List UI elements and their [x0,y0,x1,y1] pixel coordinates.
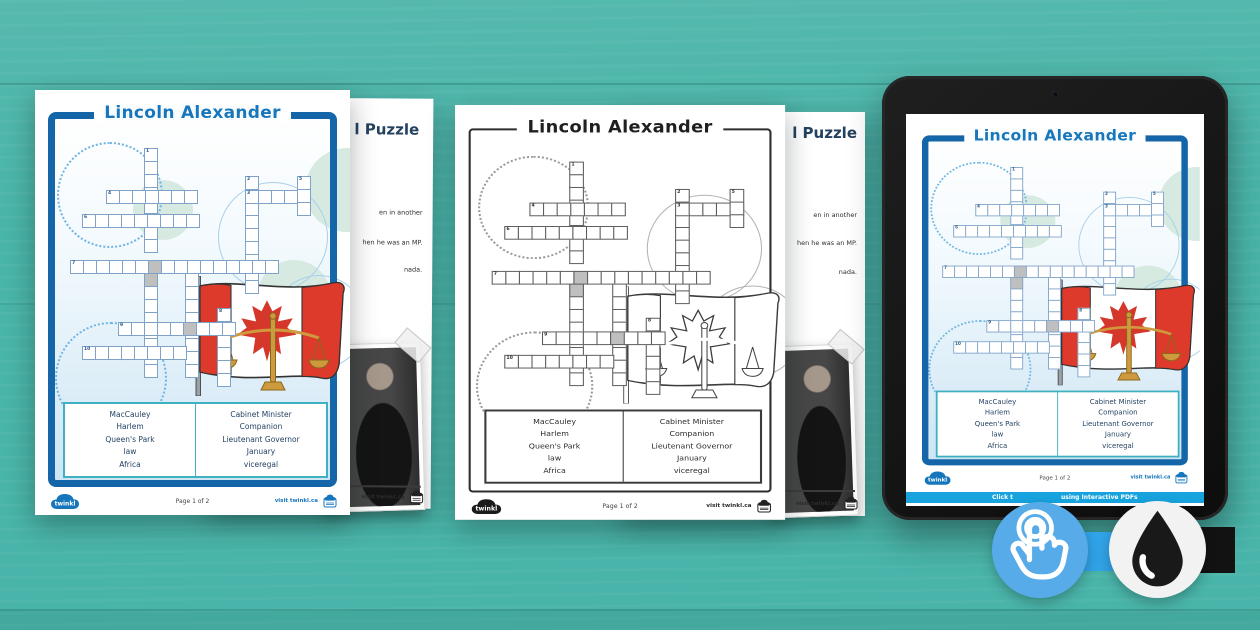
crossword-cell [518,226,533,240]
word-bank-item: MacCauley [110,409,151,422]
word-bank-item: MacCauley [979,397,1017,408]
word-bank-item: MacCauley [533,416,576,428]
quality-badge-icon [756,498,773,514]
crossword-cell [569,238,584,252]
crossword-cell [646,356,661,370]
crossword-cell [1082,320,1095,332]
crossword-clue-number: 6 [84,216,87,221]
crossword-clue-number: 10 [84,348,90,353]
word-bank-item: Companion [1098,408,1137,419]
clue-fragment: nada. [839,268,857,276]
quality-badge-icon [409,489,425,505]
crossword-cell [569,309,584,323]
crossword-cell [134,214,148,228]
crossword-cell [134,346,148,360]
word-bank-item: Cabinet Minister [1090,397,1146,408]
crossword-cell [185,273,199,287]
crossword-cell: 7 [70,260,84,274]
crossword-cell: 8 [646,318,661,332]
crossword-cell [569,284,584,298]
page-footer: twinklPage 1 of 2visit twinkl.ca [47,492,338,510]
crossword-cell [147,214,161,228]
crossword-cell [174,260,188,274]
crossword-cell: 4 [529,203,544,217]
crossword-cell [573,271,588,285]
clue-fragment: nada. [404,266,422,274]
crossword-cell [587,271,602,285]
crossword-cell [598,203,613,217]
quality-badge-icon [1174,471,1189,485]
page-two-title-fragment: l Puzzle [792,124,857,142]
visit-link-text: visit twinkl.ca [361,494,404,500]
crossword-cell [1074,266,1087,278]
crossword-cell [675,214,690,228]
crossword-clue-number: 5 [1153,193,1156,197]
page-title-row: Lincoln Alexander [910,127,1200,145]
tap-finger-icon[interactable] [992,502,1088,598]
crossword-cell [1010,357,1023,369]
word-bank-item: Africa [543,465,565,477]
crossword-cell [682,271,697,285]
word-bank-item: Queen's Park [529,441,581,453]
crossword-cell: 6 [953,225,966,237]
banner-text-fragment: Click t [992,494,1013,501]
crossword-cell [1023,204,1036,216]
tablet-screen: 14623578910Lincoln AlexanderMacCauleyHar… [906,114,1204,506]
crossword-cell [144,364,158,378]
ink-drop-icon[interactable] [1109,501,1206,598]
crossword-cell [83,260,97,274]
crossword-cell [108,346,122,360]
word-bank-column: Cabinet MinisterCompanionLieutenant Gove… [623,411,760,481]
page-title: Lincoln Alexander [964,127,1145,145]
word-bank-item: Queen's Park [975,419,1020,430]
crossword-cell [612,347,627,361]
crossword-cell [144,322,158,336]
crossword-cell [135,260,149,274]
crossword-cell [1047,204,1060,216]
visit-link-text: visit twinkl.ca [796,501,839,507]
crossword-cell [1025,341,1038,353]
crossword-clue-number: 3 [1105,205,1108,209]
crossword-cell [271,190,285,204]
crossword-cell [161,260,175,274]
crossword-cell [977,341,990,353]
crossword-cell [965,341,978,353]
crossword-cell [1077,365,1090,377]
crossword-cell: 7 [942,266,955,278]
crossword-cell [258,190,272,204]
crossword-clue-number: 9 [544,333,547,337]
crossword-cell: 3 [245,190,259,204]
crossword-clue-number: 10 [506,356,513,360]
crossword-cell [200,260,214,274]
crossword-cell [519,271,534,285]
page-two-title-fragment: l Puzzle [354,120,419,138]
crossword-cell [675,240,690,254]
crossword-cell [586,226,601,240]
crossword-cell: 7 [492,271,507,285]
word-bank-item: Africa [988,441,1008,452]
crossword-grid: 14623578910 [933,167,1191,387]
crossword-cell [543,203,558,217]
crossword-cell: 10 [953,341,966,353]
crossword-cell [572,226,587,240]
word-bank-item: Lieutenant Governor [651,441,732,453]
crossword-cell: 9 [118,322,132,336]
word-bank-item: law [548,453,561,465]
crossword-cell [209,322,223,336]
page-title: Lincoln Alexander [517,118,723,138]
crossword-clue-number: 8 [219,310,222,315]
word-bank-item: January [677,453,707,465]
crossword-cell [569,296,584,310]
crossword-cell [265,260,279,274]
crossword-clue-number: 8 [1079,309,1082,313]
crossword-cell [1127,204,1140,216]
crossword-cell [187,260,201,274]
crossword-cell [1049,225,1062,237]
crossword-cell [610,331,625,345]
crossword-cell [144,174,158,188]
crossword-cell [624,331,639,345]
crossword-cell: 5 [730,189,745,203]
crossword-cell [569,187,584,201]
crossword-cell [1022,320,1035,332]
crossword-cell: 3 [1103,204,1116,216]
crossword-cell: 6 [504,226,519,240]
crossword-cell [518,355,533,369]
crossword-cell [121,214,135,228]
crossword-cell [966,266,979,278]
page-title-row: Lincoln Alexander [455,118,785,138]
crossword-cell [696,271,711,285]
crossword-cell [987,204,1000,216]
crossword-clue-number: 7 [944,267,947,271]
word-bank: MacCauleyHarlemQueen's ParklawAfricaCabi… [936,391,1180,458]
crossword-cell: 1 [144,148,158,162]
crossword-cell [213,260,227,274]
crossword-cell [646,381,661,395]
crossword-cell [158,190,172,204]
crossword-cell [730,202,745,216]
crossword-cell [144,161,158,175]
crossword-cell [612,360,627,374]
crossword-cell [1011,204,1024,216]
crossword-cell [284,190,298,204]
crossword-clue-number: 10 [955,343,961,347]
word-bank-column: MacCauleyHarlemQueen's ParklawAfrica [486,411,622,481]
clue-fragment: hen he was an MP. [362,238,422,246]
word-bank-item: Lieutenant Governor [222,434,299,447]
crossword-clue-number: 4 [108,192,111,197]
crossword-cell [532,226,547,240]
word-bank-item: Cabinet Minister [230,409,291,422]
crossword-clue-number: 4 [977,205,980,209]
crossword-cell [1048,357,1061,369]
crossword-clue-number: 1 [1012,168,1015,172]
crossword-cell [998,320,1011,332]
worksheet-page: 14623578910Lincoln AlexanderMacCauleyHar… [35,90,350,515]
crossword-cell [572,355,587,369]
crossword-cell [1025,225,1038,237]
crossword-cell: 5 [297,176,311,190]
crossword-cell [596,331,611,345]
worksheet-page: 14623578910Lincoln AlexanderMacCauleyHar… [455,105,785,520]
crossword-cell [612,372,627,386]
crossword-cell [185,299,199,313]
crossword-cell [559,226,574,240]
crossword-cell [965,225,978,237]
crossword-cell [183,322,197,336]
crossword-cell [583,331,598,345]
crossword-clue-number: 2 [1105,193,1108,197]
crossword-cell [628,271,643,285]
crossword-cell [222,322,236,336]
visit-link-text: visit twinkl.ca [275,498,318,504]
clue-fragment: hen he was an MP. [797,239,857,247]
crossword-cell [1103,283,1116,295]
crossword-cell [532,355,547,369]
crossword-cell [560,271,575,285]
crossword-cell [1013,341,1026,353]
crossword-cell [160,214,174,228]
word-bank-column: Cabinet MinisterCompanionLieutenant Gove… [1057,392,1178,455]
worksheet-on-tablet: 14623578910Lincoln AlexanderMacCauleyHar… [910,116,1204,506]
crossword-cell [675,290,690,304]
crossword-cell [954,266,967,278]
word-bank-item: Cabinet Minister [660,416,724,428]
crossword-cell [569,331,584,345]
crossword-cell [245,202,259,216]
crossword-cell [1122,266,1135,278]
crossword-cell [546,271,561,285]
crossword-cell [556,331,571,345]
camera-dot-icon [1052,91,1059,98]
crossword-cell: 3 [675,203,690,217]
crossword-cell [1062,266,1075,278]
crossword-cell [999,204,1012,216]
crossword-cell [584,203,599,217]
crossword-clue-number: 3 [677,204,680,208]
crossword-cell [185,338,199,352]
visit-link-text: visit twinkl.ca [1131,475,1171,480]
crossword-cell [108,214,122,228]
crossword-cell [184,190,198,204]
crossword-cell [144,239,158,253]
crossword-cell [611,203,626,217]
crossword-cell [148,260,162,274]
word-bank-item: Lieutenant Governor [1082,419,1153,430]
crossword-clue-number: 4 [532,204,535,208]
crossword-cell [600,355,615,369]
crossword-cell [637,331,652,345]
crossword-cell [1151,215,1164,227]
word-bank-column: Cabinet MinisterCompanionLieutenant Gove… [195,404,326,476]
crossword-cell [119,190,133,204]
crossword-clue-number: 2 [677,190,680,194]
crossword-cell [245,241,259,255]
crossword-cell [1139,204,1152,216]
crossword-cell [131,322,145,336]
word-bank-item: Companion [669,428,714,440]
crossword-cell [245,215,259,229]
quality-badge-icon [843,495,859,511]
page-footer: twinklPage 1 of 2visit twinkl.ca [921,470,1189,486]
crossword-cell [1086,266,1099,278]
crossword-cell [601,271,616,285]
crossword-cell [559,355,574,369]
crossword-cell [160,346,174,360]
crossword-cell [1010,320,1023,332]
crossword-cell [586,355,601,369]
crossword-cell [505,271,520,285]
word-bank-item: law [991,430,1003,441]
word-bank-item: viceregal [674,465,710,477]
page-title: Lincoln Alexander [94,103,291,123]
crossword-cell [675,227,690,241]
crossword-cell: 8 [217,308,231,322]
word-bank: MacCauleyHarlemQueen's ParklawAfricaCabi… [484,410,762,484]
crossword-cell [145,190,159,204]
crossword-clue-number: 6 [955,226,958,230]
crossword-cell [185,286,199,300]
crossword-cell [646,343,661,357]
word-bank-item: January [247,446,275,459]
crossword-cell [1070,320,1083,332]
crossword-cell [1034,320,1047,332]
crossword-cell [1098,266,1111,278]
crossword-cell [545,226,560,240]
word-bank-item: viceregal [244,459,278,472]
crossword-cell [95,214,109,228]
crossword-cell [173,214,187,228]
word-bank-item: Africa [119,459,140,472]
crossword-cell: 9 [542,331,557,345]
crossword-cell: 6 [82,214,96,228]
crossword-cell [171,190,185,204]
crossword-cell [147,346,161,360]
page-title-row: Lincoln Alexander [35,103,350,123]
word-bank-item: Harlem [540,428,569,440]
tablet-device: 14623578910Lincoln AlexanderMacCauleyHar… [882,76,1228,520]
crossword-cell: 1 [569,162,584,176]
crossword-clue-number: 5 [732,190,735,194]
crossword-cell [245,280,259,294]
crossword-cell [655,271,670,285]
crossword-cell [1035,204,1048,216]
crossword-cell [689,203,704,217]
crossword-cell [613,226,628,240]
crossword-cell [990,266,1003,278]
crossword-cell [297,189,311,203]
word-bank-column: MacCauleyHarlemQueen's ParklawAfrica [938,392,1058,455]
crossword-cell [173,346,187,360]
crossword-cell [569,250,584,264]
crossword-grid: 14623578910 [481,162,774,406]
crossword-cell [612,296,627,310]
crossword-cell [1046,320,1059,332]
crossword-cell [144,273,158,287]
crossword-cell [978,266,991,278]
crossword-cell [533,271,548,285]
crossword-cell [702,203,717,217]
crossword-cell [1110,266,1123,278]
crossword-cell: 2 [675,189,690,203]
crossword-cell [252,260,266,274]
preview-stage: l Puzzle en in another hen he was an MP.… [0,0,1260,630]
crossword-cell [642,271,657,285]
crossword-clue-number: 9 [120,324,123,329]
worksheet-colour-version: 14623578910Lincoln AlexanderMacCauleyHar… [35,90,350,515]
word-bank: MacCauleyHarlemQueen's ParklawAfricaCabi… [63,402,328,478]
banner-text-fragment: using Interactive PDFs [1061,494,1138,501]
crossword-cell [245,228,259,242]
crossword-cell [96,260,110,274]
worksheet-page: 14623578910Lincoln AlexanderMacCauleyHar… [910,116,1200,490]
word-bank-item: Queen's Park [105,434,154,447]
crossword-cell [170,322,184,336]
crossword-cell [646,369,661,383]
crossword-cell [1037,225,1050,237]
crossword-cell [121,346,135,360]
crossword-cell [569,372,584,386]
crossword-clue-number: 1 [571,163,574,167]
crossword-cell: 10 [82,346,96,360]
crossword-cell: 9 [986,320,999,332]
crossword-cell [570,203,585,217]
crossword-clue-number: 7 [494,272,497,276]
crossword-cell [122,260,136,274]
crossword-clue-number: 5 [299,178,302,183]
clue-fragment: en in another [379,208,423,216]
crossword-cell [185,351,199,365]
crossword-cell [217,360,231,374]
crossword-cell [1058,320,1071,332]
visit-link-text: visit twinkl.ca [706,503,751,509]
crossword-cell [144,299,158,313]
word-bank-item: Harlem [985,408,1010,419]
crossword-cell [144,286,158,300]
crossword-cell [1115,204,1128,216]
word-bank-column: MacCauleyHarlemQueen's ParklawAfrica [65,404,195,476]
crossword-cell [1010,247,1023,259]
page-footer: twinklPage 1 of 2visit twinkl.ca [468,497,773,515]
crossword-cell [669,271,684,285]
worksheet-blackwhite-version: 14623578910Lincoln AlexanderMacCauleyHar… [455,105,770,530]
crossword-cell: 10 [504,355,519,369]
crossword-cell [569,174,584,188]
word-bank-item: Harlem [116,421,143,434]
crossword-cell [977,225,990,237]
word-bank-item: Companion [240,421,283,434]
crossword-cell [1026,266,1039,278]
crossword-cell [144,226,158,240]
crossword-cell [109,260,123,274]
crossword-clue-number: 1 [146,150,149,155]
crossword-cell [989,341,1002,353]
crossword-cell [196,322,210,336]
crossword-cell [730,214,745,228]
word-bank-item: viceregal [1102,441,1133,452]
crossword-cell [612,309,627,323]
crossword-cell [157,322,171,336]
crossword-cell [185,364,199,378]
clue-fragment: en in another [813,211,857,219]
crossword-cell: 4 [106,190,120,204]
crossword-clue-number: 2 [247,178,250,183]
crossword-cell [239,260,253,274]
